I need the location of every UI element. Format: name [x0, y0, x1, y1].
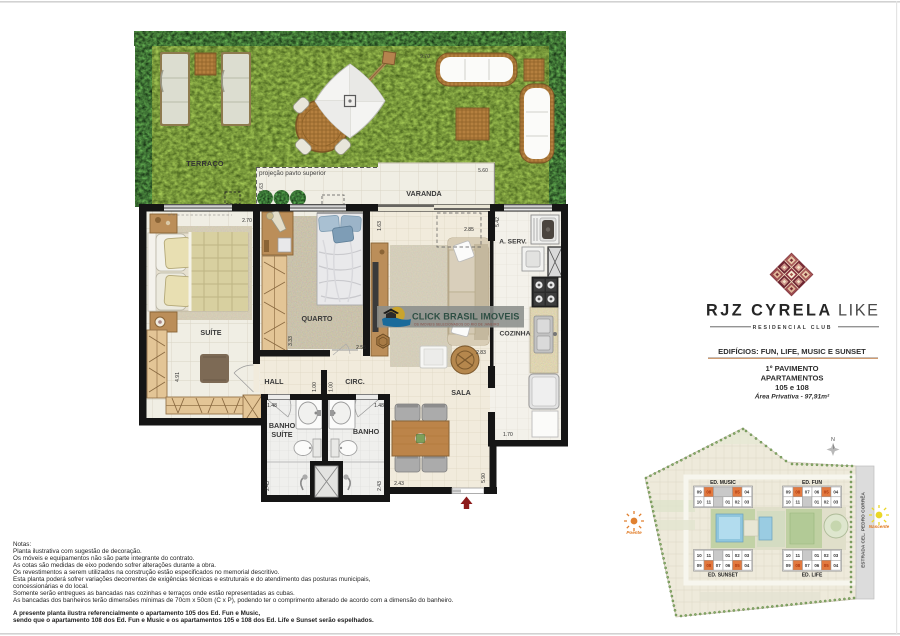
svg-text:ED. LIFE: ED. LIFE [802, 573, 823, 579]
svg-text:04: 04 [744, 563, 749, 568]
svg-text:2.43: 2.43 [265, 481, 271, 491]
svg-text:10: 10 [697, 500, 702, 505]
svg-text:Poente: Poente [626, 530, 642, 535]
svg-text:09: 09 [786, 563, 791, 568]
svg-text:TERRAÇO: TERRAÇO [186, 159, 224, 168]
svg-text:Área Privativa - 97,91m²: Área Privativa - 97,91m² [754, 392, 830, 401]
svg-text:projeção pavto superior: projeção pavto superior [259, 170, 327, 177]
svg-text:105 e 108: 105 e 108 [775, 383, 809, 392]
svg-text:01: 01 [814, 553, 819, 558]
svg-text:Os móveis e equipamentos não s: Os móveis e equipamentos não são parte i… [13, 555, 195, 562]
svg-text:N: N [831, 437, 835, 443]
svg-text:10: 10 [697, 553, 702, 558]
svg-text:CIRC.: CIRC. [345, 377, 365, 386]
svg-text:1.00: 1.00 [329, 382, 335, 392]
svg-text:10: 10 [786, 500, 791, 505]
svg-text:03: 03 [744, 553, 749, 558]
svg-text:2.85: 2.85 [464, 227, 474, 233]
svg-text:11: 11 [706, 553, 711, 558]
svg-text:RESIDENCIAL CLUB: RESIDENCIAL CLUB [753, 325, 833, 331]
svg-text:1.70: 1.70 [503, 432, 513, 438]
svg-text:11: 11 [706, 500, 711, 505]
svg-text:Os revestimentos a serem utili: Os revestimentos a serem utilizados na c… [13, 569, 280, 576]
svg-text:As bancadas dos banheiros terã: As bancadas dos banheiros terão dimensõe… [13, 597, 454, 604]
svg-text:ED. FUN: ED. FUN [802, 480, 822, 486]
svg-text:Notas:: Notas: [13, 541, 31, 548]
svg-text:EDIFÍCIOS: FUN, LIFE, MUSIC E: EDIFÍCIOS: FUN, LIFE, MUSIC E SUNSET [718, 347, 866, 356]
svg-text:A. SERV.: A. SERV. [499, 239, 527, 246]
svg-text:03: 03 [744, 500, 749, 505]
svg-text:07: 07 [805, 563, 810, 568]
svg-text:07: 07 [805, 490, 810, 495]
svg-text:CLICK BRASIL IMOVEIS: CLICK BRASIL IMOVEIS [412, 312, 520, 322]
svg-text:02: 02 [824, 500, 829, 505]
svg-text:01: 01 [814, 500, 819, 505]
svg-text:01: 01 [725, 500, 730, 505]
svg-text:BANHO: BANHO [353, 427, 380, 436]
svg-text:QUARTO: QUARTO [301, 314, 332, 323]
svg-text:05: 05 [824, 490, 829, 495]
svg-text:1.00: 1.00 [312, 382, 318, 392]
svg-text:1.48: 1.48 [267, 403, 277, 409]
svg-text:07: 07 [716, 563, 721, 568]
svg-text:02: 02 [735, 500, 740, 505]
svg-text:04: 04 [833, 490, 838, 495]
svg-text:11: 11 [795, 553, 800, 558]
svg-text:1.63: 1.63 [377, 221, 383, 231]
svg-text:06: 06 [814, 563, 819, 568]
svg-text:2.55: 2.55 [356, 345, 366, 351]
svg-text:5.90: 5.90 [481, 473, 487, 483]
svg-text:06: 06 [725, 563, 730, 568]
svg-text:Planta ilustrativa com sugestã: Planta ilustrativa com sugestão de decor… [13, 548, 142, 555]
svg-text:05: 05 [824, 563, 829, 568]
svg-text:08: 08 [795, 563, 800, 568]
svg-text:BANHO: BANHO [269, 421, 296, 430]
svg-text:2.43: 2.43 [377, 481, 383, 491]
svg-text:08: 08 [706, 490, 711, 495]
svg-text:HALL: HALL [264, 377, 284, 386]
svg-text:09: 09 [697, 490, 702, 495]
svg-text:A presente planta ilustra refe: A presente planta ilustra referencialmen… [13, 610, 260, 617]
svg-text:OS IMOVEIS SELECIONADOS DO: OS IMOVEIS SELECIONADOS DO RIO DE JANEIR… [414, 323, 500, 327]
svg-text:concessionárias e do local.: concessionárias e do local. [13, 583, 89, 590]
svg-text:1º PAVIMENTO: 1º PAVIMENTO [766, 364, 819, 373]
svg-text:04: 04 [833, 563, 838, 568]
svg-text:03: 03 [833, 500, 838, 505]
svg-text:ED. MUSIC: ED. MUSIC [710, 480, 736, 486]
svg-text:05: 05 [735, 563, 740, 568]
svg-text:08: 08 [706, 563, 711, 568]
svg-text:05: 05 [735, 490, 740, 495]
svg-text:APARTAMENTOS: APARTAMENTOS [761, 374, 824, 383]
svg-text:RJZ CYRELA: RJZ CYRELA [706, 302, 833, 320]
svg-text:Somente serão entregues as ban: Somente serão entregues as bancadas nas … [13, 590, 295, 597]
svg-text:LIKE: LIKE [838, 302, 880, 320]
svg-text:SUÍTE: SUÍTE [200, 328, 221, 337]
svg-text:Nascente: Nascente [869, 524, 890, 529]
svg-text:02: 02 [824, 553, 829, 558]
svg-text:5.60: 5.60 [478, 168, 488, 174]
svg-text:Esta planta poderá sofrer vari: Esta planta poderá sofrer variações deco… [13, 576, 371, 583]
svg-text:As cotas são medidas de eix: As cotas são medidas de eixo podendo sof… [13, 562, 216, 569]
svg-text:03: 03 [833, 553, 838, 558]
svg-text:09: 09 [697, 563, 702, 568]
svg-text:06: 06 [814, 490, 819, 495]
svg-text:2.70: 2.70 [242, 218, 252, 224]
svg-text:VARANDA: VARANDA [406, 189, 441, 198]
svg-text:08: 08 [795, 490, 800, 495]
svg-text:1.48: 1.48 [374, 403, 384, 409]
svg-text:10: 10 [786, 553, 791, 558]
svg-text:ED. SUNSET: ED. SUNSET [708, 573, 738, 579]
svg-text:2.83: 2.83 [476, 350, 486, 356]
svg-text:5.42: 5.42 [495, 217, 501, 227]
svg-text:09: 09 [786, 490, 791, 495]
svg-text:04: 04 [744, 490, 749, 495]
svg-text:3.33: 3.33 [288, 336, 294, 346]
svg-text:COZINHA: COZINHA [500, 331, 531, 338]
svg-text:11: 11 [795, 500, 800, 505]
svg-text:4.91: 4.91 [175, 372, 181, 382]
svg-text:SUÍTE: SUÍTE [271, 430, 292, 439]
svg-text:SALA: SALA [451, 388, 471, 397]
svg-text:01: 01 [725, 553, 730, 558]
svg-text:9.70: 9.70 [420, 54, 430, 60]
svg-text:sendo que o apartamento 108 do: sendo que o apartamento 108 dos Ed. Fun … [13, 617, 374, 624]
svg-text:02: 02 [735, 553, 740, 558]
svg-text:2.43: 2.43 [394, 481, 404, 487]
